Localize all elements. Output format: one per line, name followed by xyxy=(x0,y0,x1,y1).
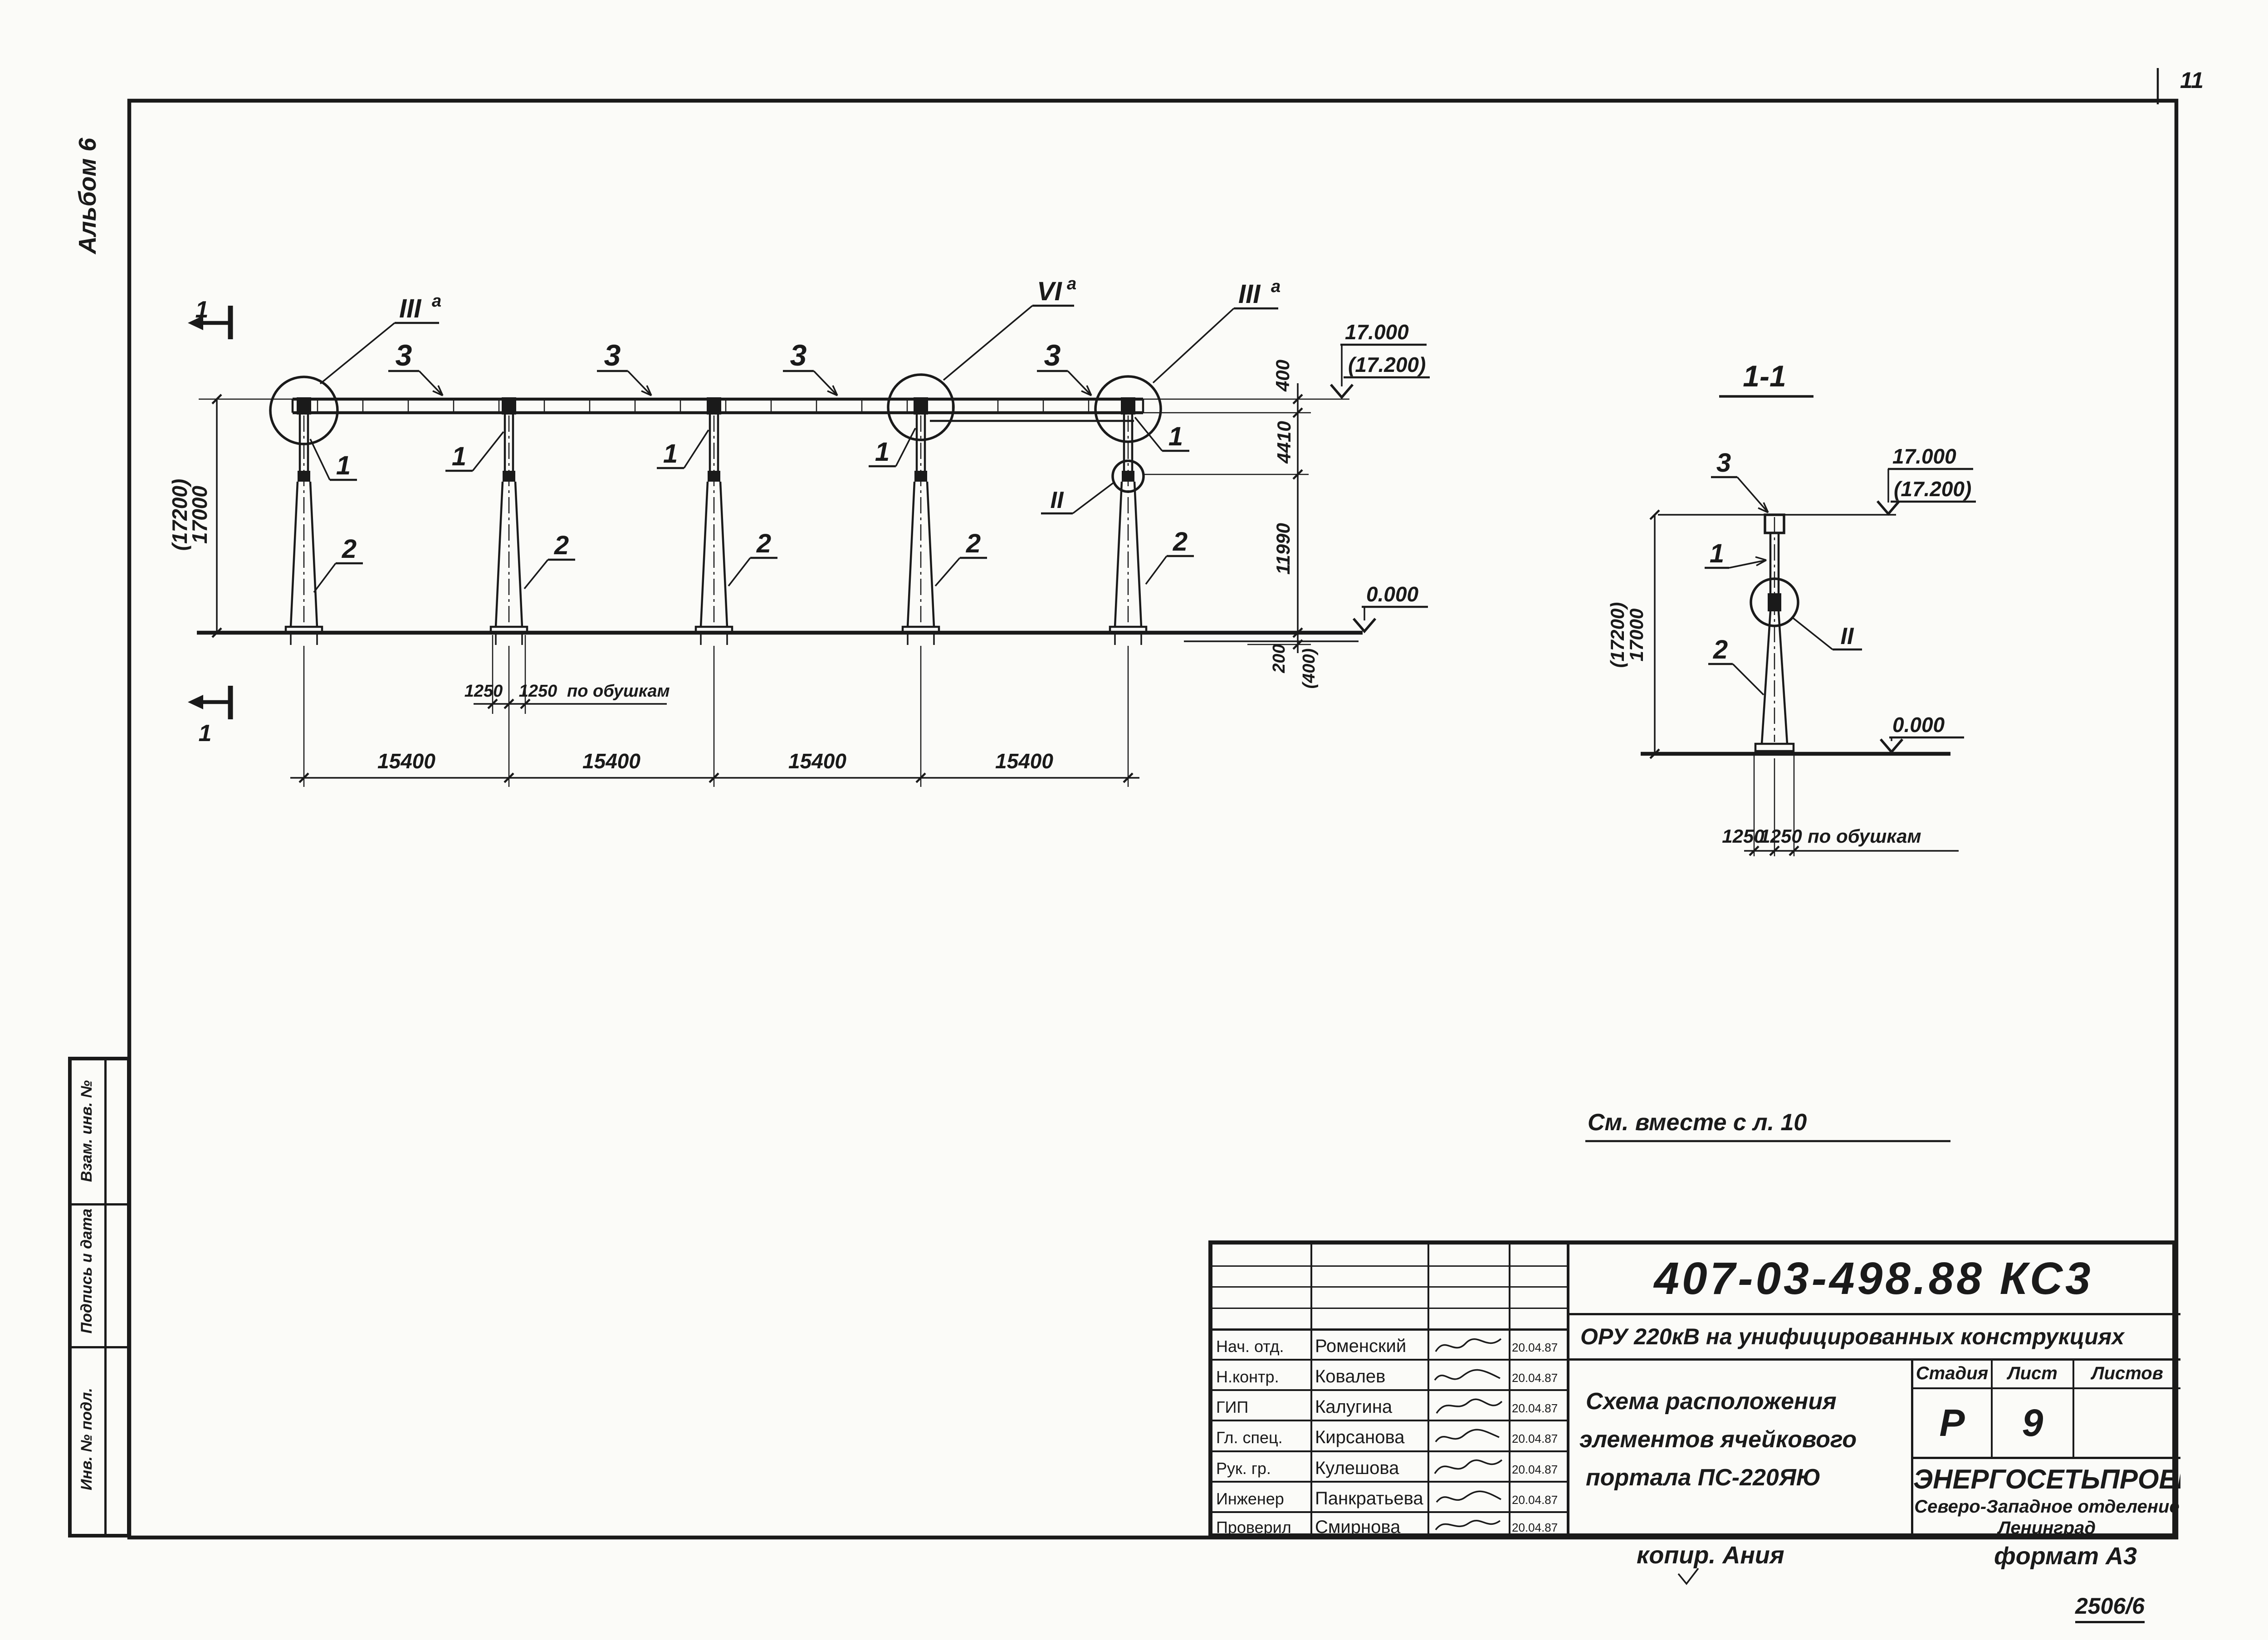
dim-chord-right: 1250 xyxy=(519,682,557,701)
level-mark-top-section: 17.000 (17.200) xyxy=(1877,444,1976,514)
sig-role: ГИП xyxy=(1216,1398,1248,1417)
signature xyxy=(1432,1513,1505,1538)
sig-row-7: Проверил Смирнова 20.04.87 xyxy=(1212,1513,1567,1544)
dim-chord-note: по обушкам xyxy=(567,682,670,701)
dim-total-height: 17000 (17200) xyxy=(168,395,303,637)
level-17000: 17.000 xyxy=(1345,320,1409,344)
sig-date: 20.04.87 xyxy=(1512,1401,1558,1415)
sig-name: Кирсанова xyxy=(1315,1427,1405,1448)
callout-text: II xyxy=(1051,487,1064,513)
sig-name: Роменский xyxy=(1315,1336,1406,1357)
sig-role: Инженер xyxy=(1216,1489,1284,1508)
dim-text-200: 200 xyxy=(1270,644,1289,673)
signature xyxy=(1432,1455,1505,1482)
stamp-cell-inv: Инв. № подл. xyxy=(78,1351,96,1528)
part-label-2: 2 xyxy=(342,534,357,564)
dim-text-400: 400 xyxy=(1272,360,1293,392)
page-number: 11 xyxy=(2180,67,2204,93)
part-label-1: 1 xyxy=(1710,539,1724,568)
sig-row-5: Рук. гр. Кулешова 20.04.87 xyxy=(1212,1453,1567,1483)
sig-date: 20.04.87 xyxy=(1512,1521,1558,1535)
sig-role: Рук. гр. xyxy=(1216,1459,1271,1478)
org-branch: Северо-Западное отделение xyxy=(1913,1497,2180,1517)
see-also-text: См. вместе с л. 10 xyxy=(1588,1109,1807,1136)
part-label-1: 1 xyxy=(663,439,678,469)
section-mark-top: 1 xyxy=(188,297,230,339)
sig-name: Смирнова xyxy=(1315,1517,1400,1537)
dim-text-17200: (17200) xyxy=(168,479,191,551)
column-part-labels: 2 2 2 2 2 xyxy=(314,527,1194,592)
level-0000: 0.000 xyxy=(1366,582,1419,606)
dim-bay-4: 15400 xyxy=(995,749,1053,773)
part-label-2: 2 xyxy=(1173,527,1188,556)
dim-text-17200: (17200) xyxy=(1607,602,1628,668)
section-digit: 1 xyxy=(199,720,212,747)
stamp-cell-podpis: Подпись и дата xyxy=(78,1204,96,1338)
dim-text-4410: 4410 xyxy=(1273,421,1295,464)
part-label-2: 2 xyxy=(966,529,981,558)
dim-text-17000: 17000 xyxy=(1626,609,1647,662)
level-17200: (17.200) xyxy=(1894,477,1971,501)
dim-chord-note: по обушкам xyxy=(1808,825,1921,847)
level-17000: 17.000 xyxy=(1892,444,1956,468)
callout-joint: II xyxy=(1041,482,1115,513)
archive-number: 2506/6 xyxy=(2075,1593,2145,1623)
sig-date: 20.04.87 xyxy=(1512,1341,1558,1355)
dim-total-height-section: 17000 (17200) xyxy=(1607,510,1659,758)
copy-check-mark xyxy=(1678,1568,1698,1584)
dim-bays: 15400 15400 15400 15400 xyxy=(290,749,1139,782)
sheet-title-line1: Схема расположения xyxy=(1586,1382,1911,1420)
dim-bay-3: 15400 xyxy=(788,749,846,773)
section-title: 1-1 xyxy=(1743,359,1786,393)
copy-note: копир. Ания xyxy=(1637,1541,1784,1569)
sig-row-4: Гл. спец. Кирсанова 20.04.87 xyxy=(1212,1422,1567,1452)
dim-bay-1: 15400 xyxy=(377,749,435,773)
dim-chord-left: 1250 xyxy=(1722,825,1764,847)
dim-text-400alt: (400) xyxy=(1300,649,1319,689)
dim-chord-left: 1250 xyxy=(464,682,503,701)
sheets-header: Листов xyxy=(2074,1361,2180,1387)
level-mark-zero: 0.000 xyxy=(1354,582,1428,631)
part-label-2: 2 xyxy=(554,531,569,560)
dim-bay-2: 15400 xyxy=(582,749,640,773)
stamp-cell-vzam: Взам. инв. № xyxy=(78,1068,96,1195)
dim-base-chords: 1250 1250 по обушкам xyxy=(464,635,670,714)
dim-base-chords-section: 1250 1250 по обушкам xyxy=(1722,753,1959,856)
stage-value: Р xyxy=(1913,1389,1991,1457)
part-label-3: 3 xyxy=(604,338,621,372)
album-note: Альбом 6 xyxy=(73,118,101,254)
sig-role: Н.контр. xyxy=(1216,1367,1279,1386)
sig-role: Нач. отд. xyxy=(1216,1337,1284,1356)
signature xyxy=(1432,1332,1505,1360)
beam-labels: 3 3 3 3 xyxy=(388,338,1091,395)
see-also-note: См. вместе с л. 10 xyxy=(1585,1109,1950,1141)
part-label-1: 1 xyxy=(336,451,351,480)
callout-node3-left: III а xyxy=(320,292,441,384)
title-block: 407-03-498.88 КС3 ОРУ 220кВ на унифициро… xyxy=(1208,1240,2176,1537)
dim-text-11990: 11990 xyxy=(1272,523,1294,575)
organization-cell: ЭНЕРГОСЕТЬПРОЕКТ Северо-Западное отделен… xyxy=(1913,1459,2180,1533)
sheet-title-line3: портала ПС-220ЯЮ xyxy=(1586,1459,1911,1497)
column-1 xyxy=(286,413,322,787)
sig-row-1: Нач. отд. Роменский 20.04.87 xyxy=(1212,1331,1567,1361)
sig-name: Ковалев xyxy=(1315,1367,1385,1387)
part-label-1: 1 xyxy=(452,442,466,471)
org-city: Ленинград xyxy=(1913,1518,2180,1533)
callout-text: II xyxy=(1841,623,1854,649)
column-2 xyxy=(491,413,527,787)
level-17200: (17.200) xyxy=(1348,353,1426,376)
sig-role: Проверил xyxy=(1216,1518,1291,1537)
signature xyxy=(1432,1485,1505,1513)
doc-number: 407-03-498.88 КС3 xyxy=(1567,1245,2180,1313)
part-label-1: 1 xyxy=(875,437,890,467)
sig-row-6: Инженер Панкратьева 20.04.87 xyxy=(1212,1483,1567,1513)
object-title: ОРУ 220кВ на унифицированных конструкция… xyxy=(1567,1315,2180,1358)
sig-name: Панкратьева xyxy=(1315,1489,1423,1509)
section-view: 1-1 3 1 2 II xyxy=(1607,359,1976,856)
sig-date: 20.04.87 xyxy=(1512,1493,1558,1507)
sig-row-2: Н.контр. Ковалев 20.04.87 xyxy=(1212,1361,1567,1391)
sig-date: 20.04.87 xyxy=(1512,1432,1558,1446)
sheet-title: Схема расположения элементов ячейкового … xyxy=(1567,1361,1911,1533)
sheet-value: 9 xyxy=(1993,1389,2072,1457)
org-name: ЭНЕРГОСЕТЬПРОЕКТ xyxy=(1913,1464,2180,1495)
dim-chord-right: 1250 xyxy=(1760,825,1802,847)
sig-name: Кулешова xyxy=(1315,1458,1399,1479)
callout-text: III xyxy=(399,294,422,323)
level-mark-top: 17.000 (17.200) xyxy=(1331,320,1430,397)
column-4 xyxy=(903,413,939,787)
section-labels: 3 1 2 II xyxy=(1705,448,1862,695)
elevation-view: III а VI а III а II 3 xyxy=(168,274,1430,787)
sheet-title-line2: элементов ячейкового xyxy=(1579,1420,1911,1459)
drawing-sheet: { "sheet": { "page_number": "11", "album… xyxy=(0,0,2268,1640)
top-part-labels: 1 1 1 1 1 xyxy=(310,417,1189,480)
callout-sup: а xyxy=(1067,274,1076,293)
callout-node3-right: III а xyxy=(1153,277,1281,383)
callout-text: VI xyxy=(1037,277,1063,306)
level-0000: 0.000 xyxy=(1892,713,1945,737)
format-note: формат А3 xyxy=(1994,1542,2137,1570)
column-3 xyxy=(696,413,732,787)
stage-header: Стадия xyxy=(1913,1361,1991,1387)
side-stamp: Взам. инв. № Подпись и дата Инв. № подл. xyxy=(68,1057,131,1537)
part-label-3: 3 xyxy=(1716,448,1731,478)
section-mark-bottom: 1 xyxy=(188,686,230,747)
part-label-2: 2 xyxy=(756,529,771,558)
sheets-value xyxy=(2074,1389,2180,1457)
signature xyxy=(1432,1424,1505,1451)
dim-right-chain: 400 4410 11990 200 (400) xyxy=(1143,360,1349,688)
part-label-2: 2 xyxy=(1713,635,1728,664)
part-label-3: 3 xyxy=(396,338,412,372)
sig-date: 20.04.87 xyxy=(1512,1463,1558,1477)
sheet-header: Лист xyxy=(1993,1361,2072,1387)
sig-role: Гл. спец. xyxy=(1216,1428,1283,1447)
callout-sup: а xyxy=(1271,277,1281,296)
part-label-3: 3 xyxy=(1044,338,1061,372)
part-label-1: 1 xyxy=(1168,422,1183,451)
sig-row-3: ГИП Калугина 20.04.87 xyxy=(1212,1391,1567,1422)
callout-text: III xyxy=(1238,279,1261,309)
signature xyxy=(1432,1363,1505,1391)
part-label-3: 3 xyxy=(790,338,807,372)
sig-name: Калугина xyxy=(1315,1397,1392,1417)
callout-sup: а xyxy=(432,292,441,311)
level-mark-zero-section: 0.000 xyxy=(1881,713,1964,752)
sig-date: 20.04.87 xyxy=(1512,1371,1558,1385)
signature xyxy=(1432,1393,1505,1421)
